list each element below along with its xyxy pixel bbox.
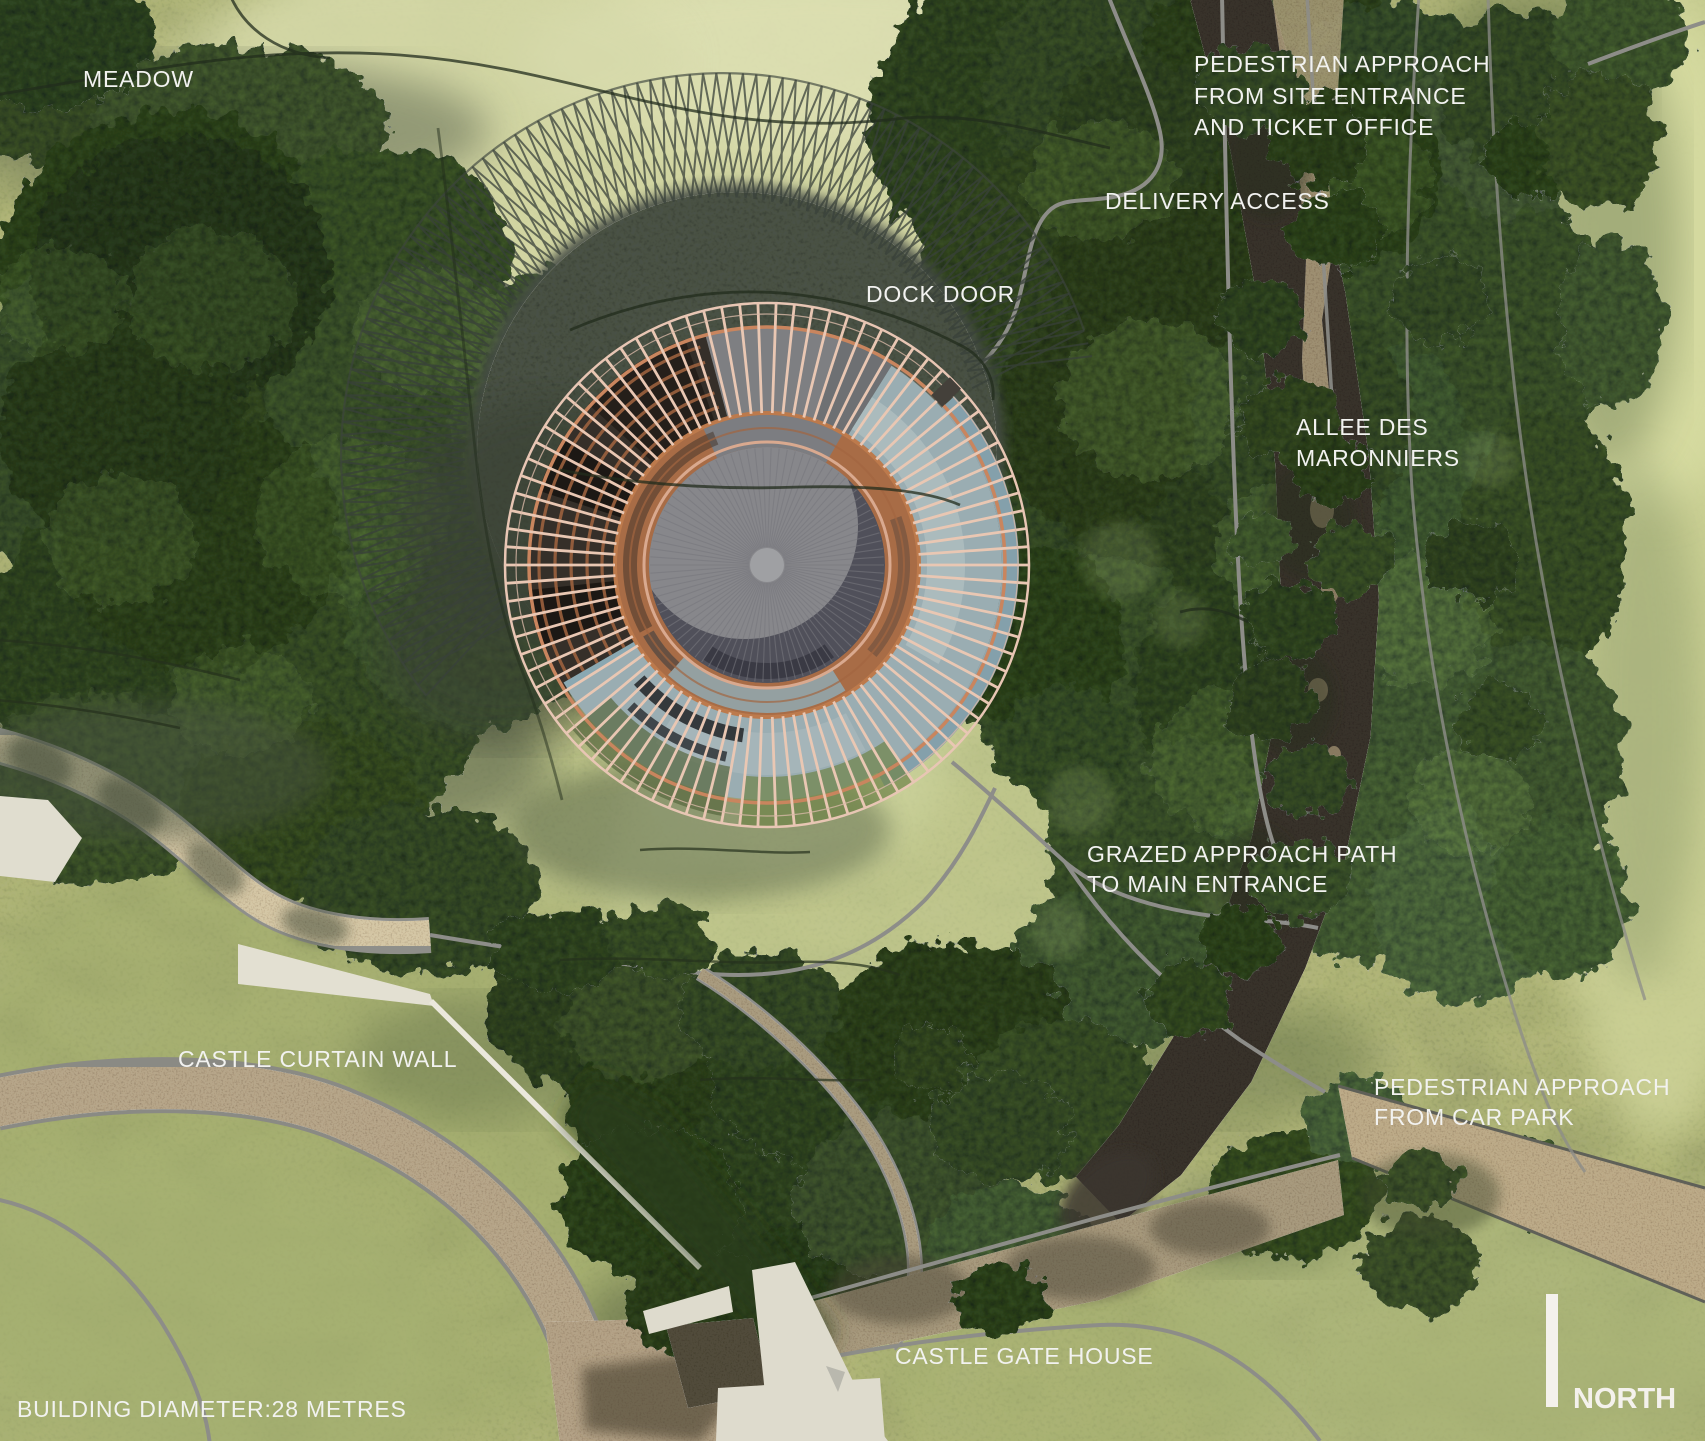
svg-text:FROM CAR PARK: FROM CAR PARK	[1374, 1104, 1574, 1130]
svg-text:CASTLE GATE HOUSE: CASTLE GATE HOUSE	[895, 1343, 1154, 1369]
svg-text:PEDESTRIAN APPROACH: PEDESTRIAN APPROACH	[1194, 51, 1490, 77]
svg-text:PEDESTRIAN APPROACH: PEDESTRIAN APPROACH	[1374, 1074, 1670, 1100]
svg-text:NORTH: NORTH	[1573, 1383, 1676, 1415]
svg-text:FROM SITE ENTRANCE: FROM SITE ENTRANCE	[1194, 83, 1467, 109]
svg-text:TO MAIN ENTRANCE: TO MAIN ENTRANCE	[1087, 871, 1328, 897]
svg-text:BUILDING DIAMETER:28 METRES: BUILDING DIAMETER:28 METRES	[17, 1396, 407, 1422]
svg-text:MEADOW: MEADOW	[83, 66, 194, 92]
svg-text:CASTLE CURTAIN WALL: CASTLE CURTAIN WALL	[178, 1046, 457, 1072]
svg-text:ALLEE DES: ALLEE DES	[1296, 414, 1429, 440]
svg-text:DOCK DOOR: DOCK DOOR	[866, 281, 1015, 307]
svg-text:MARONNIERS: MARONNIERS	[1296, 445, 1460, 471]
svg-text:AND TICKET OFFICE: AND TICKET OFFICE	[1194, 114, 1434, 140]
svg-text:DELIVERY ACCESS: DELIVERY ACCESS	[1105, 188, 1330, 214]
svg-text:GRAZED APPROACH PATH: GRAZED APPROACH PATH	[1087, 841, 1397, 867]
